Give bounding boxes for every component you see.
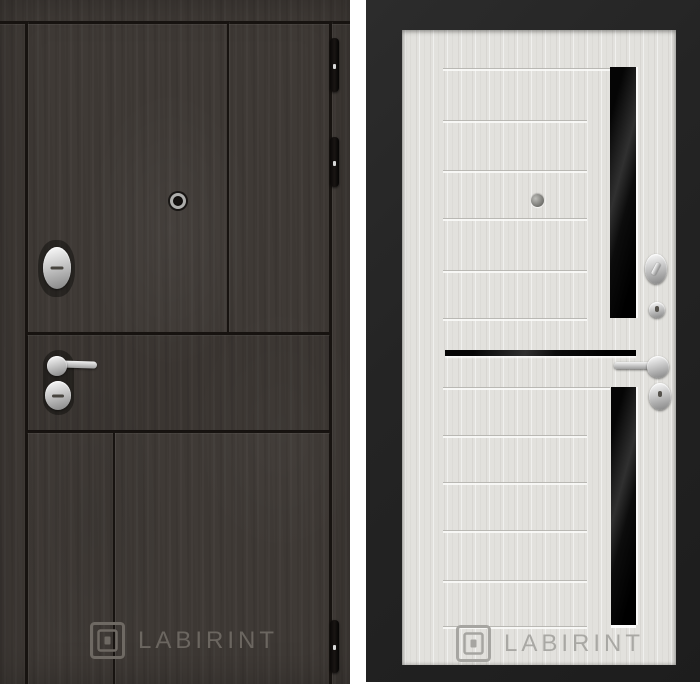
peephole — [531, 194, 544, 207]
panel-groove-top — [0, 21, 350, 24]
brand-watermark: LABIRINT — [90, 622, 278, 659]
glass-insert-lower — [611, 387, 636, 625]
door-interior-frame: LABIRINT — [366, 0, 700, 682]
panel-groove — [443, 580, 587, 583]
panel-groove — [443, 387, 610, 390]
labyrinth-logo-icon — [456, 625, 491, 662]
glass-insert-upper — [610, 67, 636, 318]
keyhole — [655, 306, 659, 312]
brand-watermark: LABIRINT — [456, 625, 644, 662]
thumb-turn — [645, 254, 667, 284]
door-hinge-top — [330, 38, 339, 92]
hinge-pin — [333, 645, 336, 650]
thumb-turn-knob — [651, 262, 662, 276]
panel-groove — [443, 482, 587, 485]
door-interior-view: LABIRINT — [402, 30, 676, 665]
labyrinth-logo-icon — [90, 622, 125, 659]
door-handle-rose — [47, 356, 67, 376]
hinge-pin — [333, 161, 336, 166]
keyhole — [51, 267, 64, 270]
panel-groove — [443, 170, 587, 173]
cylinder-lock — [43, 247, 71, 289]
keyhole — [658, 391, 662, 397]
peephole — [170, 193, 186, 209]
glass-insert-horizontal — [445, 350, 636, 356]
panel-groove — [443, 530, 587, 533]
panel-groove — [443, 435, 587, 438]
panel-groove — [443, 68, 610, 71]
panel-groove — [443, 120, 587, 123]
brand-wordmark: LABIRINT — [138, 623, 278, 659]
keyhole — [52, 394, 64, 397]
panel-groove — [443, 218, 587, 221]
panel-groove — [443, 270, 587, 273]
cylinder-escutcheon — [45, 381, 71, 410]
door-hinge-bottom — [330, 620, 339, 673]
panel-groove — [443, 318, 587, 321]
hinge-pin — [333, 64, 336, 69]
panel-groove-center — [227, 22, 229, 334]
brand-wordmark: LABIRINT — [504, 626, 644, 662]
door-hinge-middle — [330, 137, 339, 187]
door-handle-rose — [647, 356, 669, 378]
lock-cylinder — [649, 302, 665, 318]
door-exterior-view: LABIRINT — [0, 0, 350, 684]
cylinder-escutcheon — [649, 383, 671, 410]
